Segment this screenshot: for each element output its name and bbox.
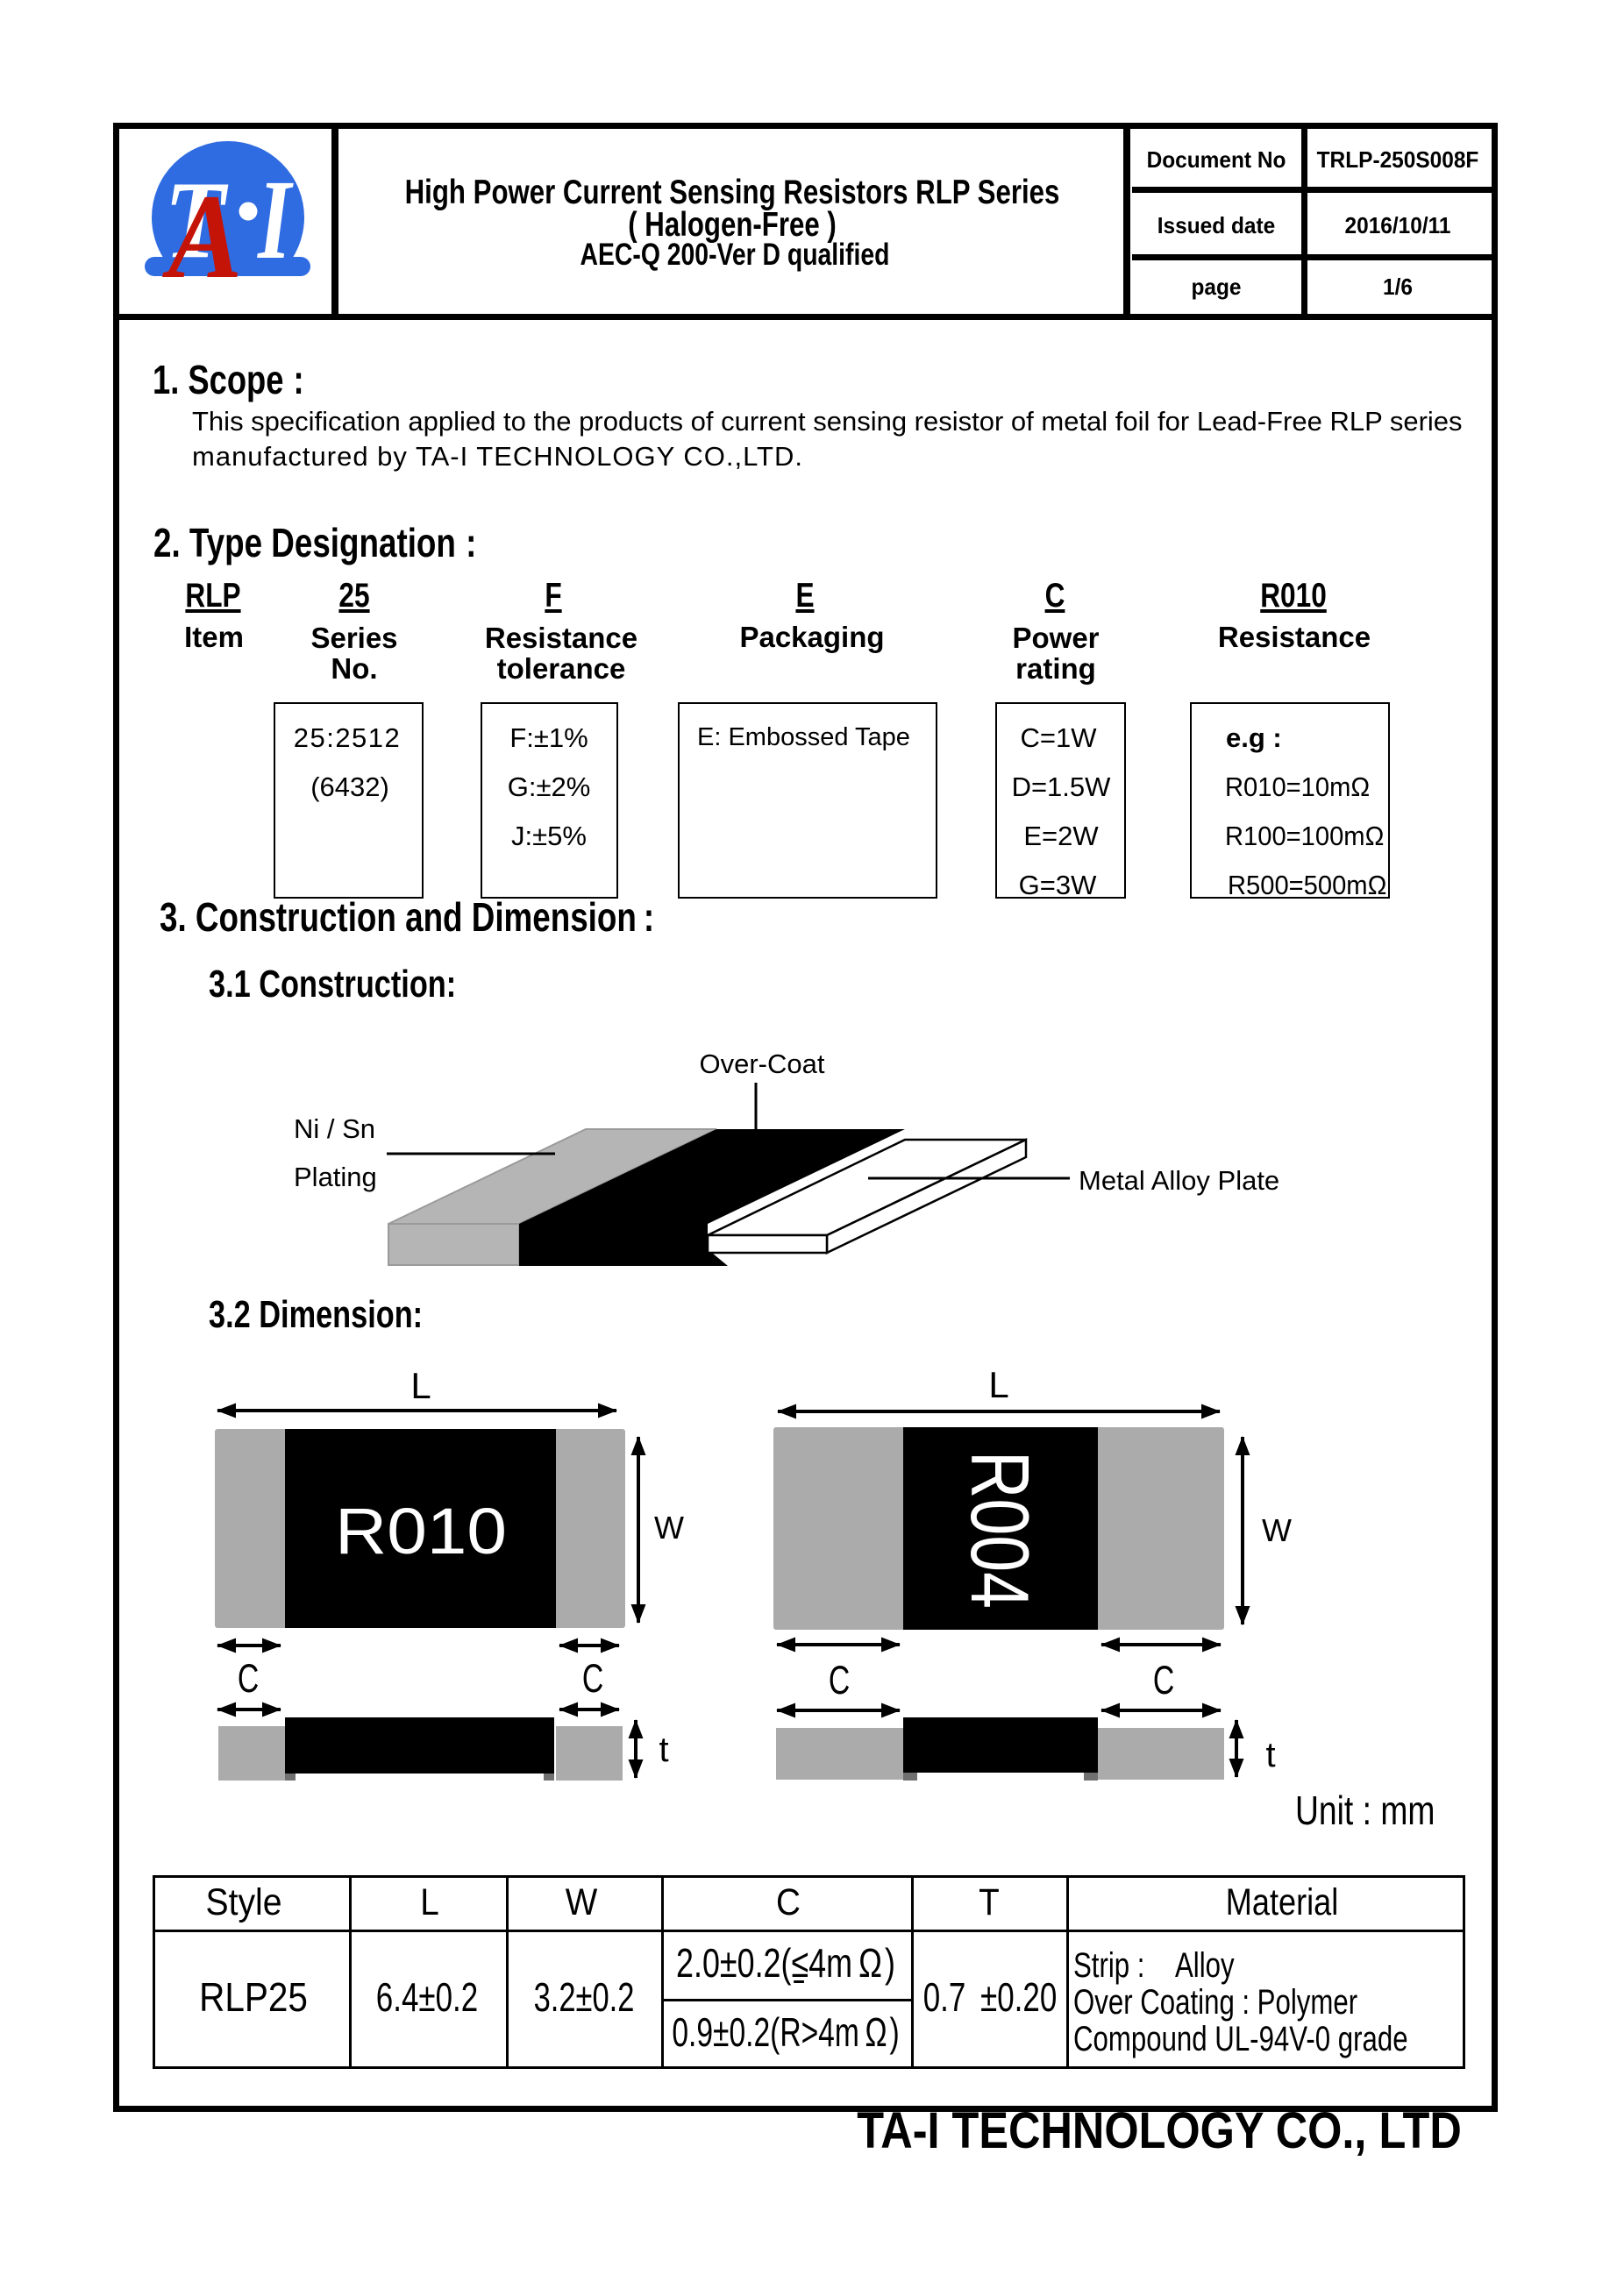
svg-text:I: I: [256, 157, 293, 283]
svg-text:R010: R010: [335, 1495, 507, 1567]
svg-text:R004: R004: [954, 1451, 1046, 1609]
svg-text:A: A: [162, 169, 242, 303]
